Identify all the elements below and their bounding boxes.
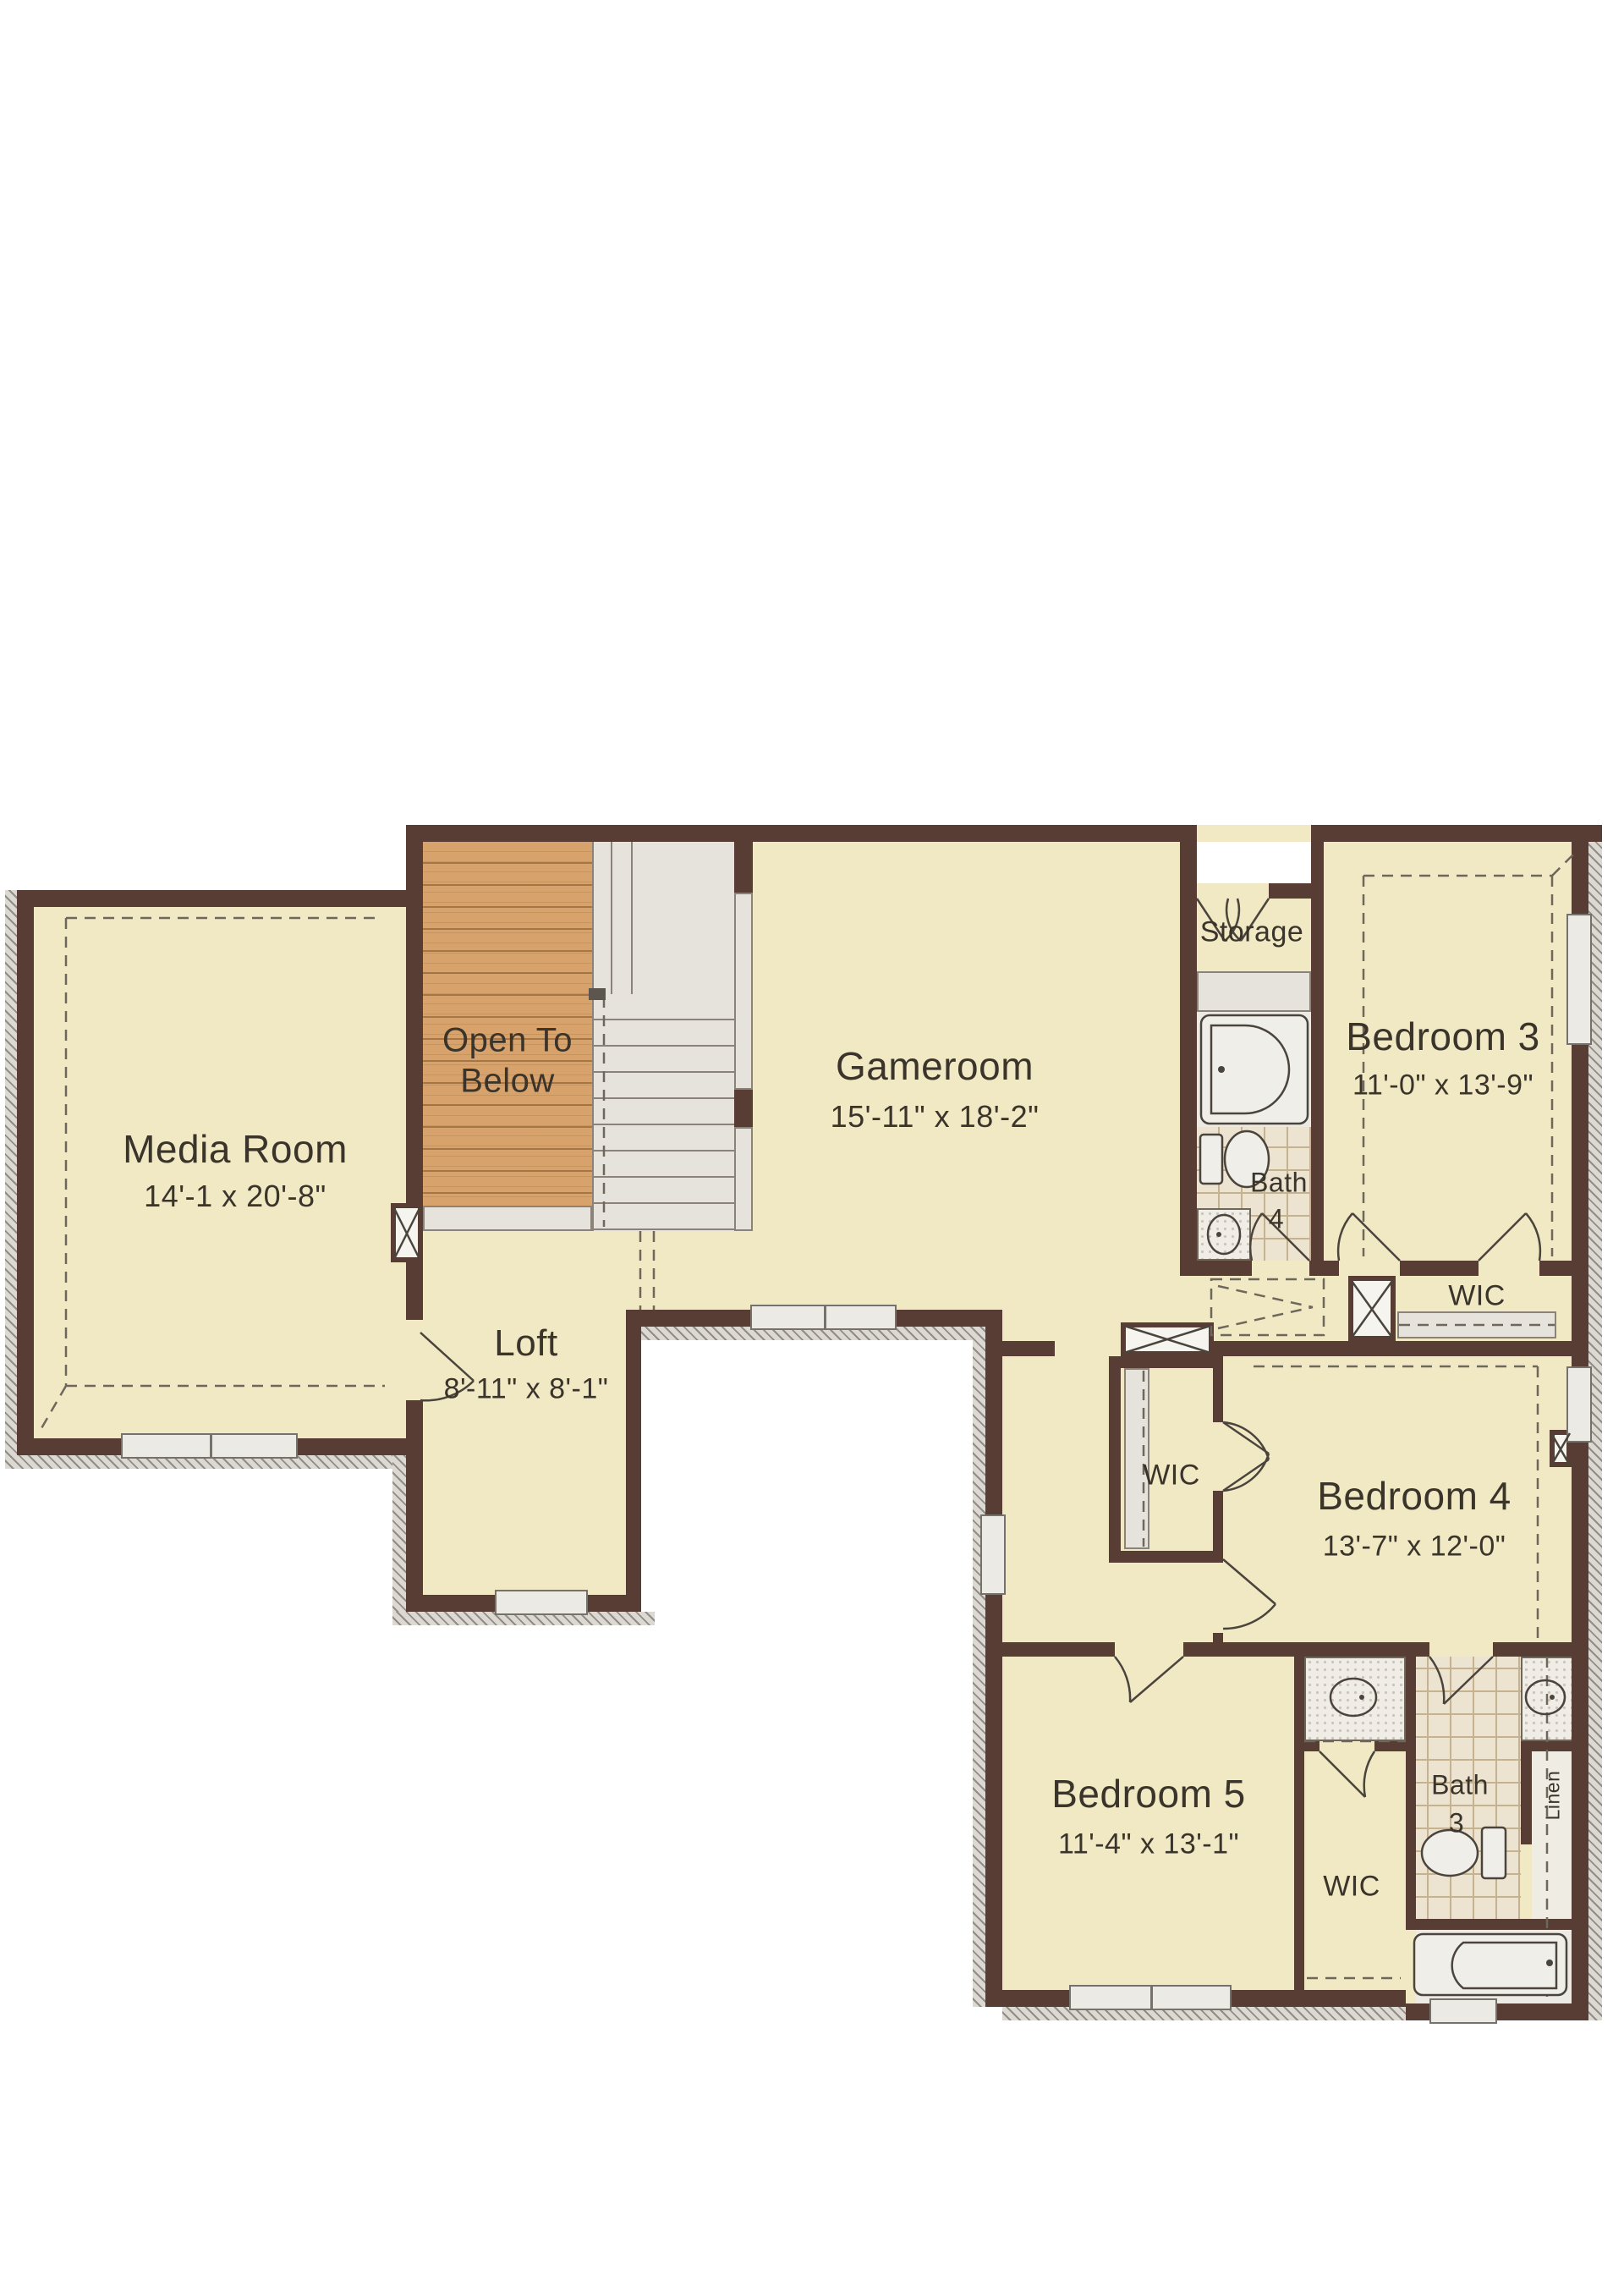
storage-label: Storage <box>1200 916 1304 949</box>
bath4-number: 4 <box>1269 1204 1284 1235</box>
bath4-tub-drain <box>1218 1066 1225 1073</box>
bath3-sink-right <box>1526 1680 1565 1714</box>
media-ceiling-dash <box>38 918 385 1434</box>
bath3-number: 3 <box>1449 1808 1464 1839</box>
second-floor-plan: Media Room 14'-1 x 20'-8" Open To Below … <box>0 0 1624 2270</box>
media-room-dims: 14'-1 x 20'-8" <box>144 1179 326 1214</box>
hall-opening-dash <box>640 1231 654 1310</box>
bath4-tub <box>1201 1015 1308 1124</box>
door-wic3 <box>1479 1213 1540 1261</box>
bath3-label: Bath <box>1431 1770 1489 1801</box>
media-room-label: Media Room <box>123 1126 348 1172</box>
bath4-label: Bath <box>1250 1168 1308 1199</box>
door-bath3 <box>1429 1657 1493 1704</box>
door-wic5 <box>1319 1751 1374 1797</box>
bath3-toilet-tank <box>1482 1828 1506 1878</box>
loft-dims: 8'-11" x 8'-1" <box>444 1373 609 1406</box>
bath4-toilet-tank <box>1200 1135 1222 1184</box>
bath3-sink-left <box>1330 1679 1376 1716</box>
door-bedroom3 <box>1338 1213 1400 1261</box>
attic-access-chevron <box>1218 1286 1313 1328</box>
gameroom-label: Gameroom <box>836 1043 1034 1089</box>
door-bedroom5 <box>1115 1657 1183 1702</box>
open-to-below-label-line2: Below <box>460 1063 554 1101</box>
bedroom3-label: Bedroom 3 <box>1346 1014 1540 1059</box>
bedroom5-dims: 11'-4" x 13'-1" <box>1058 1828 1239 1861</box>
bath3-tub-drain <box>1546 1959 1553 1966</box>
bedroom4-label: Bedroom 4 <box>1317 1473 1512 1519</box>
bedroom3-dims: 11'-0" x 13'-9" <box>1352 1069 1533 1102</box>
chase-x-marks <box>394 1208 1570 1465</box>
bedroom5-label: Bedroom 5 <box>1051 1771 1246 1817</box>
wic4-label: WIC <box>1143 1459 1200 1492</box>
stair-newel <box>589 988 606 1000</box>
wic5-label: WIC <box>1323 1871 1380 1904</box>
loft-label: Loft <box>494 1322 557 1365</box>
open-to-below-label-line1: Open To <box>442 1022 573 1060</box>
gameroom-dims: 15'-11" x 18'-2" <box>831 1099 1040 1135</box>
bath4-sink <box>1208 1215 1240 1254</box>
door-wic4-double <box>1223 1422 1269 1491</box>
bedroom4-dims: 13'-7" x 12'-0" <box>1323 1531 1506 1564</box>
linen-label: Linen <box>1542 1771 1565 1821</box>
wic3-label: WIC <box>1448 1280 1506 1313</box>
door-bedroom4 <box>1223 1559 1276 1629</box>
